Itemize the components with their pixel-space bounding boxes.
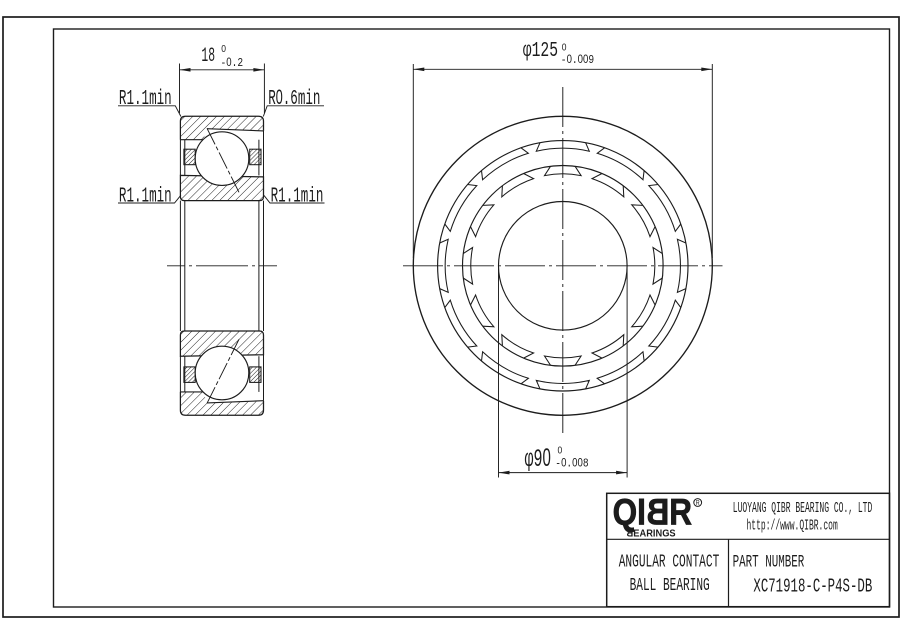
svg-text:LUOYANG QIBR BEARING CO., LTD: LUOYANG QIBR BEARING CO., LTD xyxy=(733,500,873,517)
svg-text:R: R xyxy=(669,492,692,533)
svg-text:http://www.QIBR.com: http://www.QIBR.com xyxy=(747,517,838,534)
svg-text:R1.1min: R1.1min xyxy=(119,184,172,208)
svg-text:R1.1min: R1.1min xyxy=(119,87,172,111)
svg-text:XC71918-C-P4S-DB: XC71918-C-P4S-DB xyxy=(753,575,872,598)
svg-text:ANGULAR CONTACT: ANGULAR CONTACT xyxy=(619,551,720,573)
svg-text:φ125: φ125 xyxy=(523,40,558,63)
svg-text:0: 0 xyxy=(558,445,563,456)
svg-text:EARINGS: EARINGS xyxy=(633,528,676,539)
svg-text:R: R xyxy=(696,500,700,508)
svg-text:0: 0 xyxy=(221,43,226,54)
svg-text:PART NUMBER: PART NUMBER xyxy=(733,553,805,572)
svg-text:-0.008: -0.008 xyxy=(555,457,588,471)
svg-text:-0.2: -0.2 xyxy=(221,56,244,70)
svg-text:QI: QI xyxy=(613,492,646,533)
svg-text:B: B xyxy=(627,528,634,539)
svg-text:R0.6min: R0.6min xyxy=(268,84,320,111)
svg-text:R1.1min: R1.1min xyxy=(271,184,324,208)
svg-text:φ90: φ90 xyxy=(525,444,551,474)
svg-text:0: 0 xyxy=(562,42,567,53)
svg-text:18: 18 xyxy=(201,44,215,67)
svg-text:B: B xyxy=(647,492,670,533)
svg-text:BALL BEARING: BALL BEARING xyxy=(630,574,710,596)
svg-text:-0.009: -0.009 xyxy=(561,53,594,67)
